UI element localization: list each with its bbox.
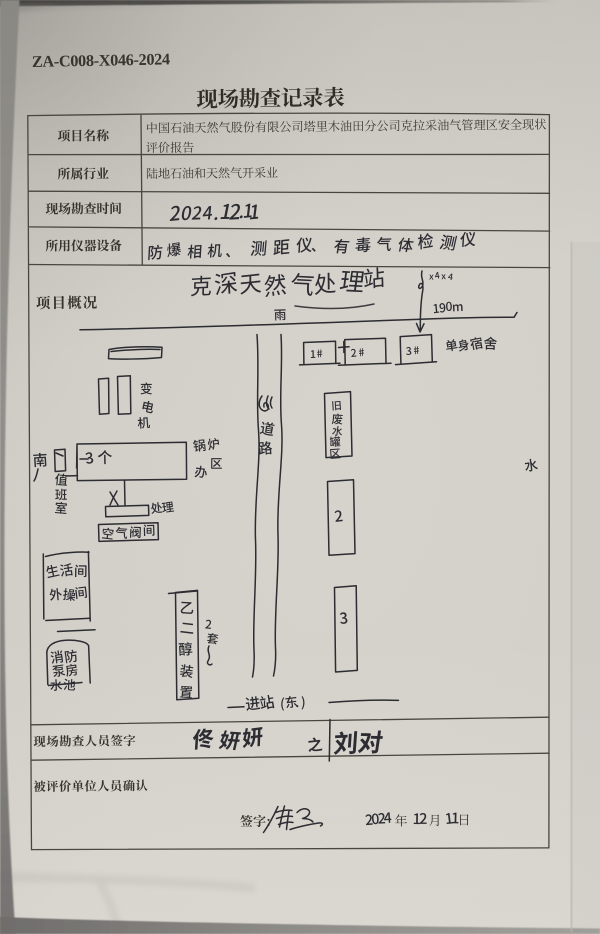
- svg-text:ZA-C008-X046-2024: ZA-C008-X046-2024: [32, 49, 170, 71]
